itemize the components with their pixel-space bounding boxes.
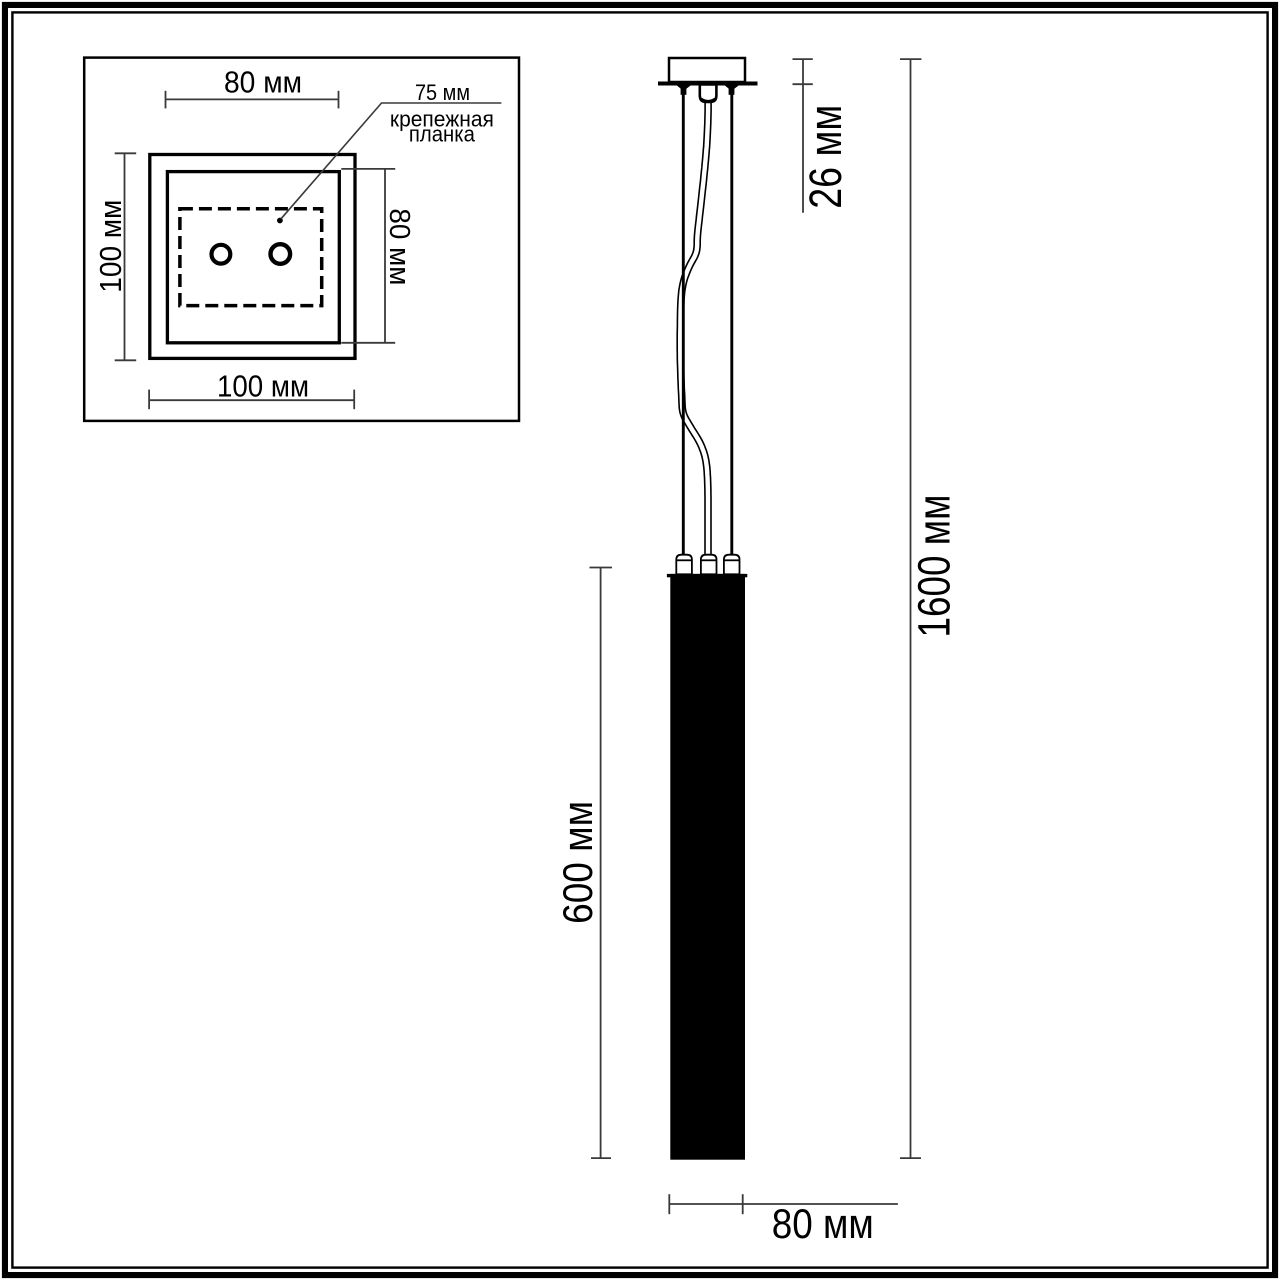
- svg-text:1600 мм: 1600 мм: [909, 495, 960, 638]
- svg-text:80 мм: 80 мм: [772, 1200, 874, 1247]
- svg-text:26 мм: 26 мм: [800, 105, 851, 209]
- svg-text:80 мм: 80 мм: [383, 208, 415, 285]
- svg-text:100 мм: 100 мм: [217, 368, 309, 403]
- svg-text:планка: планка: [409, 121, 476, 146]
- svg-text:75 мм: 75 мм: [415, 80, 470, 105]
- svg-text:80 мм: 80 мм: [224, 65, 302, 100]
- svg-text:600 мм: 600 мм: [554, 801, 601, 924]
- svg-text:100 мм: 100 мм: [93, 200, 128, 293]
